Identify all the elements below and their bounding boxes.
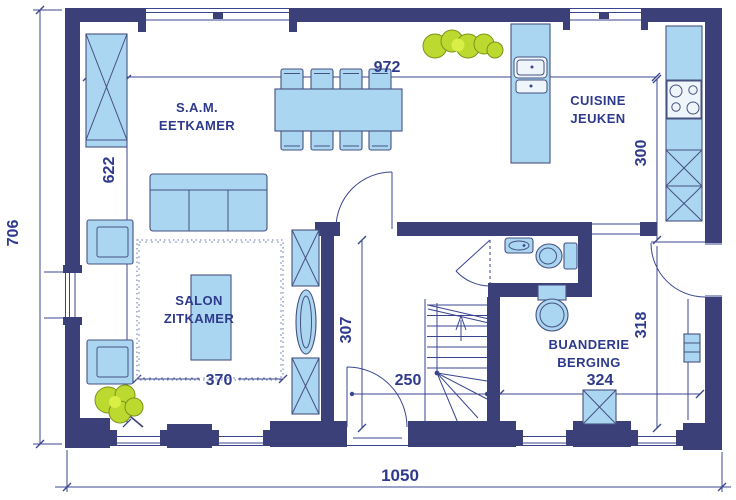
- dim-living-width: 370: [206, 372, 233, 389]
- storage-cabinet: [292, 230, 319, 286]
- room-label-living-2: ZITKAMER: [164, 311, 235, 326]
- sideboard: [296, 290, 316, 354]
- floor-plan: S.A.M. EETKAMER CUISINE JEUKEN SALON ZIT…: [0, 0, 736, 495]
- cooktop: [667, 81, 701, 118]
- toilet: [536, 243, 577, 269]
- washing-machine: [536, 285, 568, 331]
- dim-stair-width: 250: [395, 372, 422, 389]
- dim-total-width: 1050: [381, 466, 419, 485]
- dining-chair: [340, 129, 362, 150]
- dim-interior-width: 972: [374, 59, 401, 76]
- dim-hall-depth: 307: [338, 317, 355, 344]
- room-label-dining-2: EETKAMER: [159, 118, 235, 133]
- room-label-kitchen-1: CUISINE: [570, 93, 626, 108]
- dim-dining-depth: 622: [101, 157, 118, 184]
- dining-chair: [311, 129, 333, 150]
- washbasin: [505, 238, 533, 253]
- armchair: [87, 220, 133, 264]
- room-label-dining-1: S.A.M.: [176, 100, 218, 115]
- dining-chair: [369, 129, 391, 150]
- kitchen-island-sink: [511, 24, 550, 163]
- dim-total-depth: 706: [5, 220, 22, 247]
- dining-chair: [340, 69, 362, 90]
- storage-cabinet: [583, 390, 616, 424]
- dim-laundry-depth: 318: [633, 312, 650, 339]
- room-label-kitchen-2: JEUKEN: [570, 111, 625, 126]
- dining-chair: [281, 129, 303, 150]
- armchair: [87, 340, 133, 384]
- dining-table: [275, 89, 402, 131]
- sofa: [150, 174, 267, 231]
- dim-kitchen-depth: 300: [633, 140, 650, 167]
- room-label-laundry-2: BERGING: [557, 355, 620, 370]
- dining-chair: [281, 69, 303, 90]
- room-label-laundry-1: BUANDERIE: [549, 337, 630, 352]
- room-label-living-1: SALON: [175, 293, 223, 308]
- dining-chair: [311, 69, 333, 90]
- tall-storage-cabinet: [86, 34, 127, 147]
- tall-kitchen-unit: [666, 26, 702, 221]
- storage-cabinet: [292, 358, 319, 414]
- floor-plan-page: S.A.M. EETKAMER CUISINE JEUKEN SALON ZIT…: [0, 0, 736, 495]
- dim-laundry-width: 324: [587, 372, 614, 389]
